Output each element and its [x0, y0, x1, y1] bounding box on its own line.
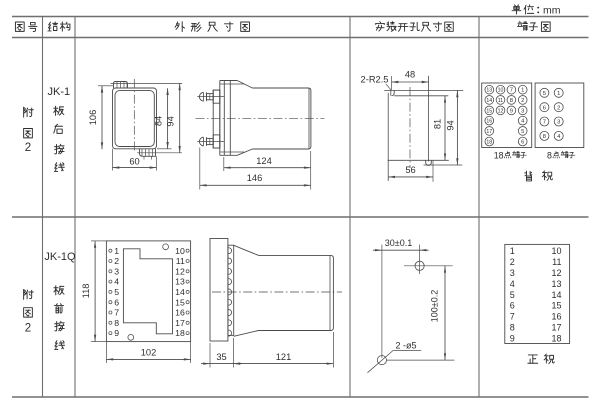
svg-text:15: 15	[175, 297, 185, 307]
svg-text:8: 8	[510, 323, 515, 333]
svg-text:100±0.2: 100±0.2	[429, 290, 439, 322]
svg-text:7: 7	[114, 308, 119, 318]
svg-text:124: 124	[256, 156, 272, 166]
svg-text:48: 48	[405, 70, 415, 80]
svg-text:84: 84	[154, 116, 164, 126]
svg-text:11: 11	[498, 98, 503, 104]
svg-text:JK-1: JK-1	[47, 86, 70, 98]
svg-text:13: 13	[551, 279, 561, 289]
svg-text:4: 4	[557, 134, 561, 140]
svg-text:1: 1	[557, 91, 560, 97]
svg-text:6: 6	[114, 297, 119, 307]
svg-text:2: 2	[521, 98, 524, 104]
svg-text:13: 13	[175, 277, 185, 287]
svg-text:12: 12	[498, 108, 504, 114]
svg-text:JK-1Q: JK-1Q	[44, 251, 76, 263]
svg-text:12: 12	[551, 268, 561, 278]
svg-text:14: 14	[486, 98, 492, 104]
svg-text:7: 7	[543, 120, 546, 126]
svg-text:5: 5	[543, 91, 546, 97]
svg-text:5: 5	[510, 290, 515, 300]
svg-text:17: 17	[486, 129, 492, 135]
svg-text:60: 60	[129, 156, 139, 166]
svg-text:1: 1	[114, 246, 119, 256]
svg-text:6: 6	[510, 301, 515, 311]
svg-text:11: 11	[552, 257, 561, 267]
svg-text:35: 35	[216, 352, 226, 362]
svg-text:17: 17	[551, 323, 561, 333]
svg-text:4: 4	[521, 119, 525, 125]
svg-text:106: 106	[88, 110, 98, 126]
svg-text:2: 2	[114, 256, 119, 266]
svg-text:16: 16	[551, 312, 561, 322]
svg-text:10: 10	[498, 88, 504, 94]
svg-text:56: 56	[405, 165, 415, 175]
svg-text:7: 7	[510, 312, 515, 322]
svg-text:12: 12	[175, 266, 185, 276]
svg-text:18: 18	[486, 140, 492, 146]
svg-text:mm: mm	[543, 5, 561, 17]
svg-text:94: 94	[445, 120, 455, 130]
svg-text:1: 1	[510, 246, 515, 256]
svg-text:2: 2	[25, 142, 31, 154]
svg-text:2: 2	[25, 323, 31, 335]
svg-text:118: 118	[81, 284, 91, 299]
svg-text:14: 14	[175, 287, 185, 297]
svg-text:3: 3	[114, 266, 119, 276]
svg-text:5: 5	[114, 287, 119, 297]
svg-text:2-R2.5: 2-R2.5	[361, 75, 389, 85]
svg-text:6: 6	[543, 105, 546, 111]
svg-text:10: 10	[175, 246, 185, 256]
svg-text:8: 8	[547, 150, 552, 160]
svg-text:8: 8	[543, 134, 546, 140]
svg-text:18: 18	[175, 328, 185, 338]
svg-text:16: 16	[486, 119, 492, 125]
svg-text:2 -ø5: 2 -ø5	[395, 340, 416, 350]
svg-text:18: 18	[551, 333, 561, 343]
svg-text:13: 13	[486, 88, 492, 94]
svg-text:146: 146	[247, 173, 263, 183]
svg-text:14: 14	[551, 290, 561, 300]
svg-text:8: 8	[510, 98, 513, 104]
svg-text:10: 10	[551, 246, 561, 256]
svg-text:16: 16	[175, 308, 185, 318]
svg-text:18: 18	[494, 150, 504, 160]
svg-text:30±0.1: 30±0.1	[385, 238, 412, 248]
svg-text:4: 4	[114, 277, 119, 287]
svg-text:17: 17	[175, 318, 185, 328]
svg-text:3: 3	[510, 268, 515, 278]
svg-text:94: 94	[166, 116, 176, 126]
svg-text:2: 2	[510, 257, 515, 267]
svg-text:1: 1	[521, 88, 524, 94]
svg-text:81: 81	[433, 119, 443, 129]
svg-text:2: 2	[557, 105, 560, 111]
svg-text:121: 121	[276, 352, 292, 362]
svg-text:9: 9	[114, 328, 119, 338]
svg-text:8: 8	[114, 318, 119, 328]
svg-text:15: 15	[486, 108, 492, 114]
svg-text:3: 3	[557, 120, 560, 126]
svg-text:11: 11	[176, 256, 185, 266]
svg-text:6: 6	[521, 140, 524, 146]
svg-text:15: 15	[551, 301, 561, 311]
svg-text:3: 3	[521, 108, 524, 114]
svg-text:5: 5	[521, 129, 524, 135]
svg-text:4: 4	[510, 279, 515, 289]
svg-text:7: 7	[510, 88, 513, 94]
svg-text:9: 9	[510, 108, 513, 114]
svg-text:9: 9	[510, 333, 515, 343]
svg-text:102: 102	[141, 348, 157, 358]
